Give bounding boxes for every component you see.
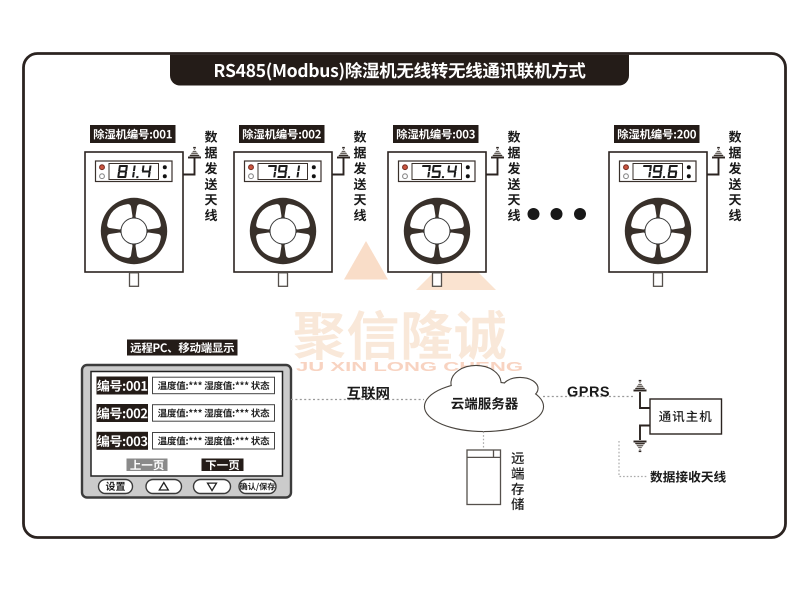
- svg-text:GPRS: GPRS: [567, 385, 610, 401]
